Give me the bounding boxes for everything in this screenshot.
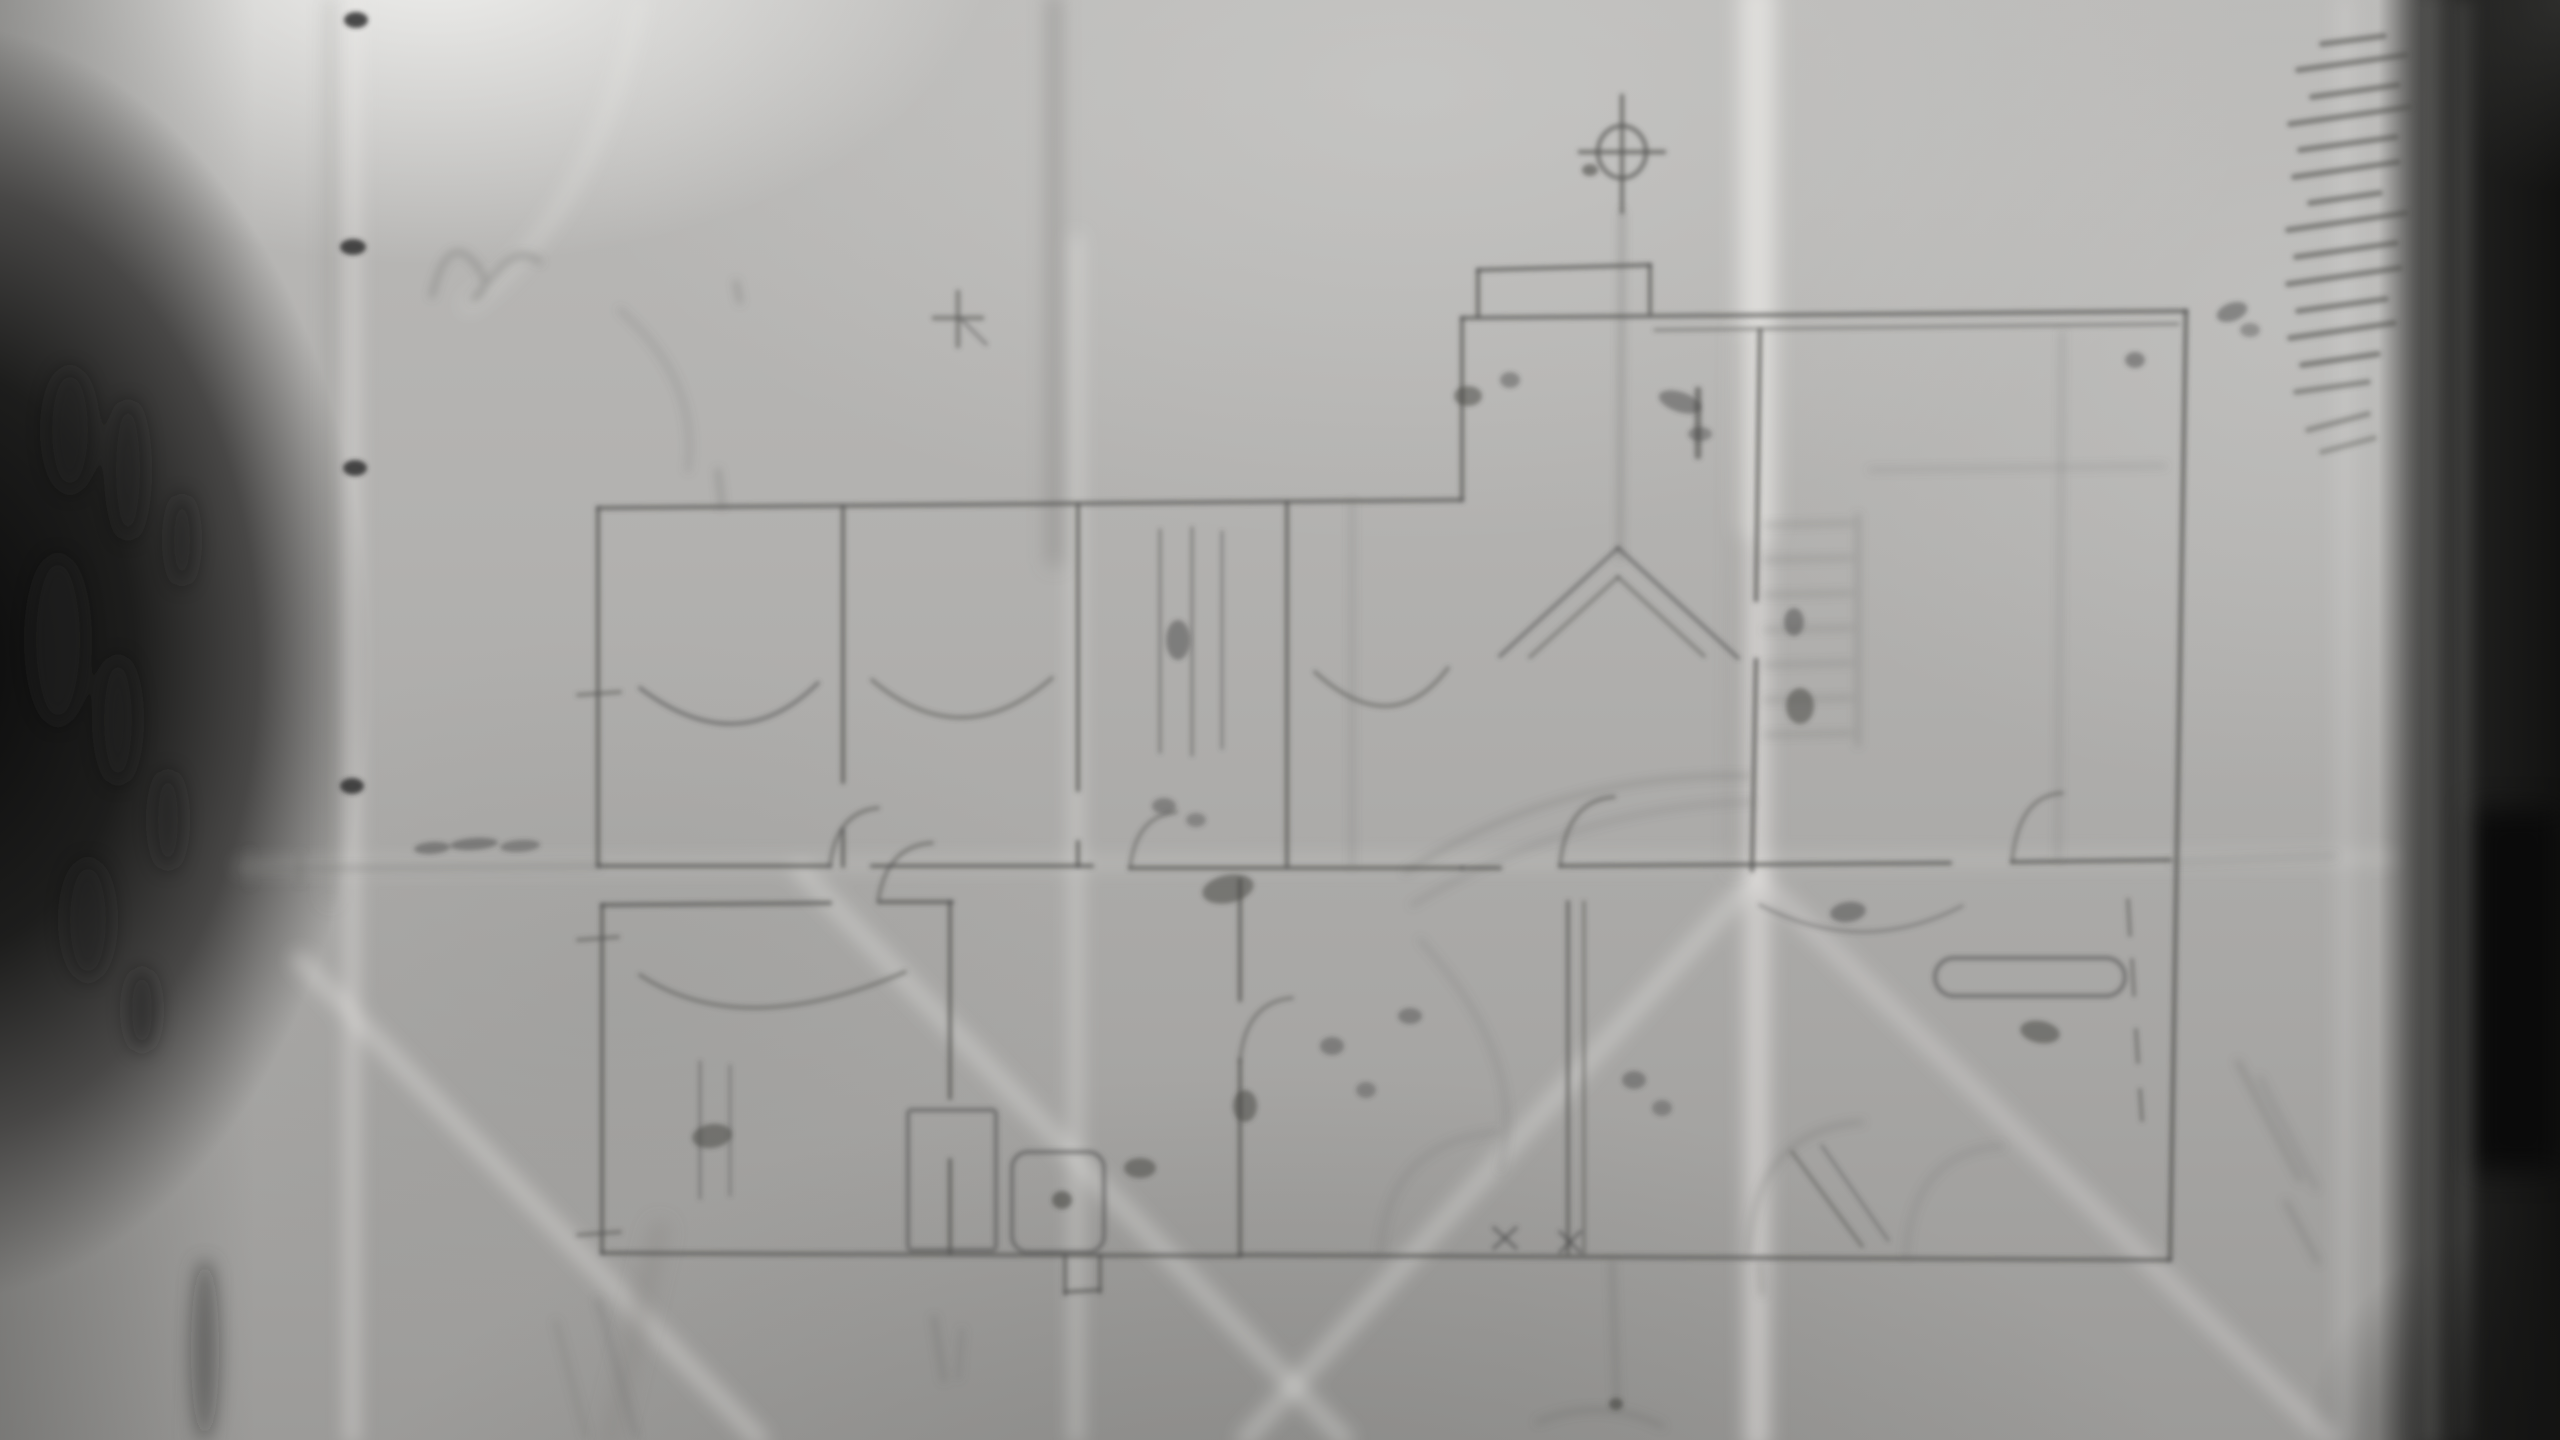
scribble-label-blobs-mark (1052, 1191, 1072, 1209)
fold-creases-dark-mark (1734, 330, 1738, 870)
scribble-label-blobs-mark (1829, 900, 1867, 925)
floor-plan-walls-mark (2012, 860, 2170, 862)
left-object-smudges-mark (126, 968, 158, 1052)
left-object-smudges (30, 368, 219, 1440)
floor-plan-walls-mark (640, 683, 818, 724)
pencil-soft-marks-mark (958, 1330, 962, 1378)
floor-plan-walls-mark (602, 903, 830, 905)
pencil-soft-marks-mark (1420, 940, 1506, 1170)
pencil-soft-marks-mark (736, 282, 740, 302)
left-object-smudges-mark (168, 494, 196, 586)
scribble-label-blobs-mark (1166, 620, 1190, 660)
scribble-label-blobs-mark (1786, 688, 1814, 724)
hole-punches-mark (340, 778, 364, 794)
floor-plan-walls-mark (578, 1232, 620, 1235)
pencil-soft-marks-mark (1760, 1262, 1762, 1294)
hole-punches-mark (343, 460, 367, 476)
floor-plan-walls (578, 96, 2186, 1294)
fold-creases-bright-mark (468, 0, 640, 306)
pencil-soft-marks-mark (1870, 466, 2165, 470)
floor-plan-walls-mark (962, 320, 986, 344)
floor-plan-walls-mark (1462, 311, 2186, 318)
floor-plan-walls-mark (2128, 900, 2130, 935)
left-object-smudges-mark (30, 556, 86, 724)
floor-plan-walls-mark (1560, 863, 1950, 866)
scribble-label-blobs-mark (1784, 608, 1804, 636)
pencil-soft-marks-mark (1765, 733, 1852, 735)
scribble-label-blobs-mark (1186, 813, 1206, 827)
scribble-label-blobs (414, 164, 2260, 1410)
floor-plan-walls-mark (1618, 548, 1738, 658)
scribble-label-blobs-mark (1152, 798, 1176, 814)
scribble-label-blobs-mark (1320, 1037, 1344, 1055)
pencil-soft-marks-mark (1765, 523, 1852, 525)
scribble-label-blobs-mark (2214, 298, 2250, 326)
pencil-soft-marks-mark (1538, 1410, 1662, 1426)
handwritten-notes-top-right-mark (2322, 36, 2384, 44)
floor-plan-walls-mark (1500, 548, 1618, 656)
floor-plan-walls-mark (872, 678, 1052, 718)
scribble-label-blobs-mark (1200, 870, 1257, 908)
floor-plan-walls-mark (578, 692, 620, 695)
floor-plan-walls-mark (1478, 265, 1650, 270)
photo-floor-plan-sketch (0, 0, 2560, 1440)
floor-plan-walls-mark (598, 500, 1462, 508)
scribble-label-blobs-mark (1688, 427, 1712, 441)
left-object-smudges-mark (64, 860, 112, 980)
left-object-smudges-mark (98, 656, 138, 784)
floor-plan-walls-mark (1792, 1152, 1862, 1246)
fold-creases-dark (200, 0, 2430, 1440)
scribble-label-blobs-mark (1622, 1071, 1646, 1089)
floor-plan-walls-mark (878, 843, 932, 902)
left-object-smudges-mark (110, 400, 146, 540)
pencil-soft-marks-mark (1765, 593, 1852, 595)
floor-plan-walls-mark (1935, 958, 2125, 996)
floor-plan-walls-mark (1560, 797, 1614, 866)
pencil-soft-marks-mark (1765, 628, 1852, 630)
floor-plan-walls-mark (1240, 1255, 2170, 1260)
pencil-soft-marks-mark (1412, 802, 1752, 905)
pencil-soft-marks-mark (2238, 1062, 2300, 1180)
floor-plan-walls-mark (2012, 793, 2062, 862)
floor-plan-walls-mark (1240, 998, 1292, 1060)
left-object-smudges-mark (46, 368, 94, 492)
pencil-soft-marks-mark (1612, 1262, 1617, 1406)
pencil-soft-marks-mark (2286, 1202, 2318, 1262)
left-object-smudges-mark (191, 1260, 219, 1440)
handwritten-notes-top-right-mark (2296, 382, 2368, 392)
pencil-soft-marks-mark (1765, 558, 1852, 560)
fold-creases-bright (240, 0, 2390, 1440)
pencil-soft-marks-mark (1906, 1146, 2002, 1256)
floor-plan-walls-mark (1065, 1290, 1100, 1292)
hole-punches-mark (344, 12, 368, 28)
scribble-label-blobs-mark (414, 841, 451, 855)
scribble-label-blobs-mark (1609, 1398, 1623, 1410)
scribble-label-blobs-mark (1652, 1100, 1672, 1116)
pencil-soft-marks-mark (556, 1322, 586, 1436)
floor-plan-walls-mark (2170, 311, 2186, 1260)
scribble-label-blobs-mark (1398, 1008, 1422, 1024)
scribble-label-blobs-mark (1124, 1158, 1156, 1178)
scribble-label-blobs-mark (691, 1121, 734, 1150)
scribble-label-blobs-mark (1582, 164, 1598, 176)
scribble-label-blobs-mark (2125, 352, 2145, 368)
scribble-label-blobs-mark (2018, 1018, 2061, 1047)
floor-plan-walls-mark (640, 972, 905, 1008)
hole-punches-mark (340, 239, 366, 255)
floor-plan-walls-mark (1315, 668, 1448, 706)
scribble-label-blobs-mark (1454, 386, 1482, 406)
floor-plan-walls-mark (2140, 1090, 2142, 1120)
scribble-label-blobs-mark (1233, 1090, 1257, 1122)
floor-plan-walls-mark (1655, 324, 2178, 330)
pencil-soft-marks-mark (2058, 332, 2062, 858)
floor-plan-walls-mark (2132, 960, 2134, 995)
handwritten-notes-top-right-mark (2312, 85, 2398, 97)
floor-plan-walls-mark (2136, 1030, 2138, 1062)
floor-plan-walls-mark (1822, 1146, 1888, 1240)
floor-plan-walls-mark (830, 808, 878, 866)
scribble-label-blobs-mark (2240, 323, 2260, 337)
floor-plan-walls-mark (602, 1253, 1240, 1256)
pencil-soft-marks-mark (620, 310, 690, 470)
scribble-label-blobs-mark (450, 836, 499, 851)
pencil-soft-marks-mark (718, 470, 722, 506)
scribble-label-blobs-mark (500, 839, 541, 854)
pencil-floor-plan-drawing (0, 0, 2560, 1440)
fold-creases-bright-mark (300, 960, 760, 1440)
pencil-soft-marks-mark (934, 1318, 944, 1380)
floor-plan-walls-mark (578, 937, 618, 940)
scribble-label-blobs-mark (1500, 372, 1520, 388)
pencil-soft-marks-mark (1765, 663, 1852, 665)
left-object-smudges-mark (152, 770, 184, 870)
pencil-soft-marks-mark (2260, 1078, 2316, 1188)
scribble-label-blobs-mark (1356, 1082, 1376, 1098)
